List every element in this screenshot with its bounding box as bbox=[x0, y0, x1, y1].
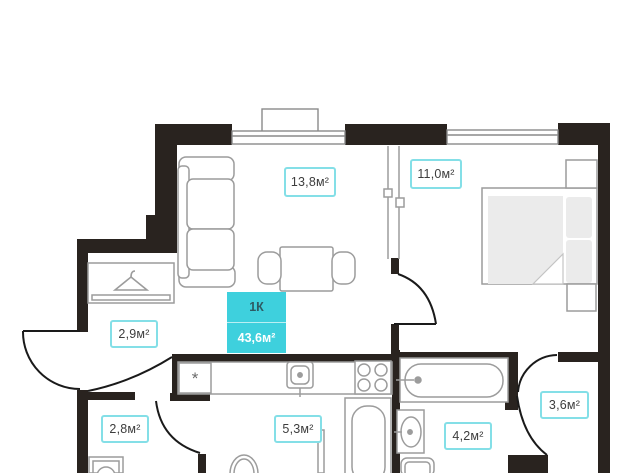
burner bbox=[358, 379, 370, 391]
room-label-bedroom: 11,0м² bbox=[410, 159, 462, 189]
second-bathroom-fixtures bbox=[394, 358, 508, 473]
sofa-cushion bbox=[187, 179, 234, 229]
wall-hallway-top bbox=[77, 239, 177, 253]
balcony-box bbox=[262, 109, 318, 132]
room-label-second-bathroom: 4,2м² bbox=[444, 422, 492, 450]
bathtub-faucet-head bbox=[415, 377, 421, 383]
entrance-door-arc bbox=[23, 331, 80, 389]
dining-set bbox=[258, 247, 355, 291]
burner bbox=[358, 364, 370, 376]
kitchen-counter bbox=[178, 361, 392, 397]
floor-plan: * 13,8м² 11,0м² 2,9м² 2,8м² 5,3м² 4,2м² … bbox=[0, 0, 640, 473]
burner bbox=[375, 364, 387, 376]
nightstand bbox=[567, 284, 596, 311]
kitchen-unit-symbol: * bbox=[192, 369, 199, 388]
chair bbox=[258, 252, 281, 284]
wall-wardrobe-bottom bbox=[508, 455, 548, 473]
burner bbox=[375, 379, 387, 391]
dining-table bbox=[280, 247, 333, 291]
wall-left-lower bbox=[77, 390, 88, 473]
bathtub-vertical bbox=[352, 406, 385, 473]
wall-bath-stub bbox=[198, 454, 206, 473]
room-label-bathroom: 5,3м² bbox=[274, 415, 322, 443]
wardrobe-door-arc bbox=[518, 355, 557, 392]
glass-partition bbox=[384, 146, 404, 259]
wall-storage-top-left bbox=[88, 392, 135, 400]
apartment-total-area: 43,6м² bbox=[227, 323, 286, 353]
nightstand bbox=[566, 160, 597, 188]
room-label-hallway: 2,9м² bbox=[110, 320, 158, 348]
sofa bbox=[178, 157, 235, 287]
sofa-cushion bbox=[187, 229, 234, 270]
partition-cap-top bbox=[384, 189, 392, 197]
pillow bbox=[566, 240, 592, 283]
window-living bbox=[232, 131, 345, 144]
hall-closet bbox=[88, 263, 174, 303]
bed bbox=[482, 160, 597, 311]
partition-cap-bottom bbox=[396, 198, 404, 207]
toilet-2-bowl bbox=[405, 462, 430, 473]
pillow bbox=[566, 197, 592, 238]
apartment-summary-badge: 1К 43,6м² bbox=[227, 292, 286, 353]
room-label-living: 13,8м² bbox=[284, 167, 336, 197]
closet-rod bbox=[92, 295, 170, 300]
bedroom-door-arc bbox=[398, 274, 436, 324]
wall-right bbox=[598, 123, 610, 473]
wall-bedroom-door-jamb-top bbox=[391, 258, 399, 274]
washbasin-drain bbox=[408, 430, 412, 434]
washing-machine bbox=[89, 457, 123, 473]
wall-wardrobe-top bbox=[558, 352, 598, 362]
bathroom-door-arc bbox=[156, 401, 200, 453]
room-label-storage: 2,8м² bbox=[101, 415, 149, 443]
wall-living-left bbox=[155, 124, 177, 253]
wall-left-upper bbox=[77, 239, 88, 332]
hallway-door-arc bbox=[88, 357, 172, 391]
chair bbox=[332, 252, 355, 284]
kitchen-sink-drain bbox=[298, 373, 302, 377]
wall-top-middle bbox=[345, 124, 447, 145]
room-label-wardrobe: 3,6м² bbox=[540, 391, 589, 419]
window-bedroom bbox=[447, 130, 558, 144]
apartment-type-label: 1К bbox=[227, 292, 286, 323]
